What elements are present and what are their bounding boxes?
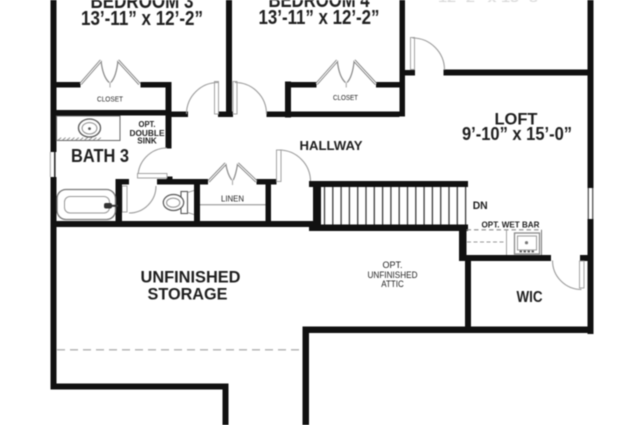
svg-text:ATTIC: ATTIC	[381, 279, 404, 289]
svg-text:13’-11” x 12’-2”: 13’-11” x 12’-2”	[81, 8, 203, 30]
svg-text:OPT.: OPT.	[139, 120, 156, 129]
svg-text:WIC: WIC	[517, 289, 543, 306]
svg-text:LINEN: LINEN	[221, 194, 244, 203]
svg-text:CLOSET: CLOSET	[97, 94, 123, 103]
svg-text:9’-10” x 15’-0”: 9’-10” x 15’-0”	[462, 124, 572, 144]
svg-text:HALLWAY: HALLWAY	[300, 138, 363, 153]
svg-text:12’-2” x 15’-8”: 12’-2” x 15’-8”	[438, 0, 546, 5]
svg-text:SINK: SINK	[137, 137, 157, 146]
svg-text:CLOSET: CLOSET	[333, 93, 358, 102]
svg-text:OPT.: OPT.	[383, 260, 403, 270]
svg-text:DN: DN	[473, 200, 488, 212]
svg-text:STORAGE: STORAGE	[148, 285, 228, 304]
svg-text:BATH 3: BATH 3	[71, 146, 129, 166]
svg-text:OPT. WET BAR: OPT. WET BAR	[482, 220, 540, 230]
svg-text:13’-11” x 12’-2”: 13’-11” x 12’-2”	[259, 7, 380, 29]
